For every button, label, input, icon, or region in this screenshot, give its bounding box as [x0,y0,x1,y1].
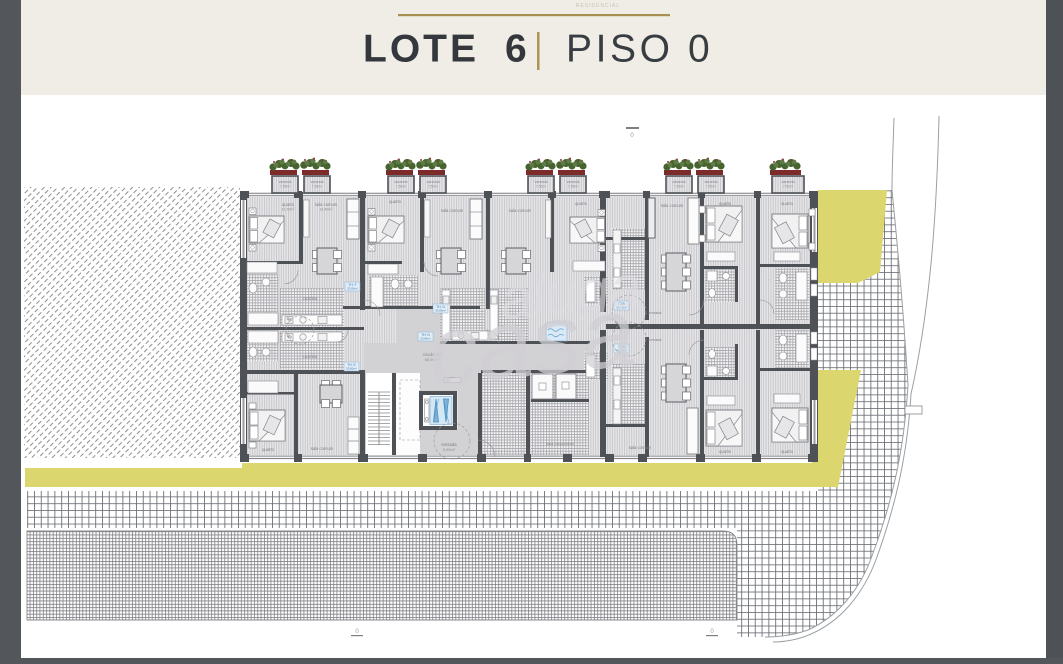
svg-text:7,50m²: 7,50m² [674,185,684,189]
svg-text:sala condominio: sala condominio [546,442,573,446]
svg-text:7,50m²: 7,50m² [706,185,716,189]
svg-text:53,80m²: 53,80m² [347,287,357,291]
svg-text:quarto: quarto [719,201,732,206]
svg-text:7,50m²: 7,50m² [280,185,290,189]
svg-text:sala comum: sala comum [441,208,464,213]
svg-text:varanda: varanda [395,180,408,184]
svg-text:7,50m²: 7,50m² [312,185,322,189]
svg-text:casa: casa [423,276,640,407]
svg-text:varanda: varanda [535,180,548,184]
svg-text:sala comum: sala comum [629,445,652,450]
svg-text:varanda: varanda [567,180,580,184]
svg-text:5,90m²: 5,90m² [443,447,456,452]
svg-text:6: 6 [505,28,527,71]
svg-text:varanda: varanda [311,180,324,184]
svg-text:quarto: quarto [282,202,295,207]
svg-text:quarto: quarto [781,449,794,454]
svg-text:quarto: quarto [719,449,732,454]
svg-text:PISO 0: PISO 0 [566,28,713,71]
svg-text:sala comum: sala comum [311,446,334,451]
svg-text:7,50m²: 7,50m² [396,185,406,189]
svg-text:7,50m²: 7,50m² [536,185,546,189]
svg-text:cozinha: cozinha [303,354,318,359]
svg-text:13,75m²: 13,75m² [281,208,295,212]
svg-text:16,40m²: 16,40m² [319,208,333,212]
svg-text:varanda: varanda [673,180,686,184]
svg-text:sala comum: sala comum [315,202,338,207]
svg-text:7,50m²: 7,50m² [783,185,793,189]
svg-text:quarto: quarto [781,201,794,206]
svg-text:cozinha: cozinha [303,296,318,301]
svg-text:LOTE: LOTE [363,28,479,71]
svg-text:7,50m²: 7,50m² [428,185,438,189]
svg-text:quarto: quarto [389,199,402,204]
svg-text:varanda: varanda [705,180,718,184]
svg-text:entrada: entrada [649,338,663,342]
svg-text:7,50m²: 7,50m² [568,185,578,189]
svg-text:varanda: varanda [427,180,440,184]
svg-text:sala comum: sala comum [661,203,684,208]
svg-text:quarto: quarto [262,447,275,452]
svg-text:sala comum: sala comum [509,208,532,213]
svg-text:RESIDENCIAL: RESIDENCIAL [576,3,620,9]
svg-text:entrada: entrada [649,311,663,315]
svg-text:varanda: varanda [782,180,795,184]
svg-text:quarto: quarto [575,201,588,206]
svg-text:varanda: varanda [279,180,292,184]
svg-text:53,80m²: 53,80m² [346,367,356,371]
